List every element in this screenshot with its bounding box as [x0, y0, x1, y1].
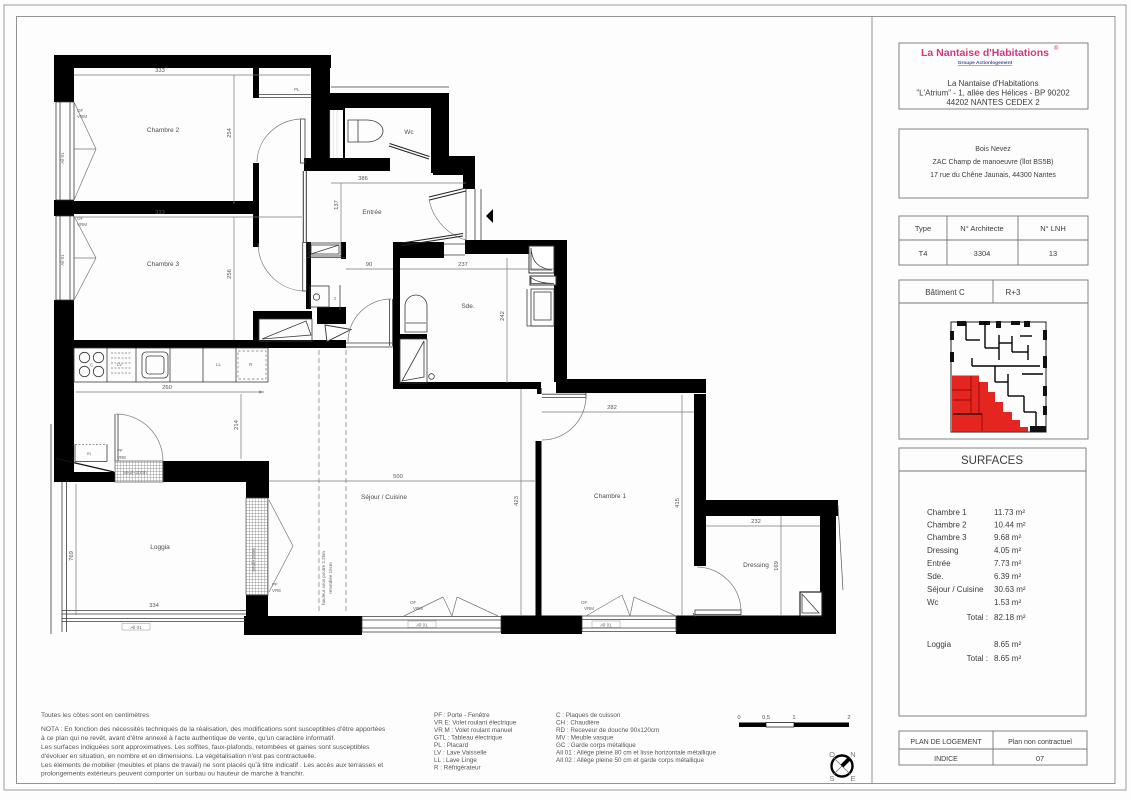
svg-text:La Nantaise d'Habitations: La Nantaise d'Habitations: [921, 47, 1049, 59]
svg-text:OF: OF: [410, 600, 417, 605]
svg-text:254: 254: [227, 127, 233, 137]
svg-text:All 01: All 01: [60, 152, 65, 164]
svg-text:Type: Type: [915, 224, 931, 233]
svg-text:90: 90: [366, 262, 372, 268]
svg-text:LV: LV: [117, 362, 122, 367]
svg-text:hauteur sous poutre 2.25m: hauteur sous poutre 2.25m: [321, 551, 326, 605]
svg-text:VRM: VRM: [584, 606, 594, 611]
svg-text:Les éléments de mobilier (meub: Les éléments de mobilier (meubles et pla…: [41, 762, 383, 769]
svg-text:PF: PF: [272, 582, 278, 587]
svg-text:VR E: Volet roulant électrique: VR E: Volet roulant électrique: [434, 720, 517, 727]
svg-text:S: S: [829, 774, 834, 783]
svg-text:La Nantaise d'Habitations: La Nantaise d'Habitations: [948, 79, 1039, 88]
svg-text:260: 260: [162, 385, 172, 391]
svg-text:500: 500: [393, 474, 403, 480]
svg-text:"L'Atrium" - 1, allée des Héli: "L'Atrium" - 1, allée des Hélices - BP 9…: [916, 89, 1070, 98]
svg-text:N° Architecte: N° Architecte: [960, 224, 1003, 233]
svg-text:Sde.: Sde.: [461, 303, 475, 310]
svg-text:Entrée: Entrée: [362, 209, 382, 216]
svg-text:PLAN DE LOGEMENT: PLAN DE LOGEMENT: [910, 739, 982, 746]
svg-text:30.63 m²: 30.63 m²: [994, 585, 1026, 594]
svg-text:Loggia: Loggia: [927, 640, 952, 649]
svg-text:VRM: VRM: [77, 222, 87, 227]
svg-text:Plan non contractuel: Plan non contractuel: [1008, 739, 1072, 746]
svg-text:PL: PL: [294, 87, 300, 92]
svg-text:7.73 m²: 7.73 m²: [994, 559, 1021, 568]
svg-text:386: 386: [358, 176, 368, 182]
svg-text:retombée 15cm: retombée 15cm: [328, 562, 333, 594]
svg-text:GC : Garde corps métallique: GC : Garde corps métallique: [556, 742, 636, 749]
svg-text:169: 169: [774, 561, 780, 571]
svg-text:1: 1: [792, 715, 795, 721]
svg-text:VRM: VRM: [413, 606, 423, 611]
svg-text:SURFACES: SURFACES: [961, 455, 1023, 467]
svg-text:All 01: All 01: [416, 623, 428, 628]
svg-text:PF: PF: [117, 448, 123, 453]
svg-text:®: ®: [1054, 44, 1059, 52]
svg-text:All 01: All 01: [600, 623, 612, 628]
svg-text:Seuil+20cm: Seuil+20cm: [123, 470, 147, 475]
svg-text:Entrée: Entrée: [927, 559, 951, 568]
svg-text:Dressing: Dressing: [743, 562, 769, 569]
svg-text:4.05 m²: 4.05 m²: [994, 546, 1021, 555]
svg-text:17 rue du Chêne Jaunais, 44300: 17 rue du Chêne Jaunais, 44300 Nantes: [930, 172, 1056, 179]
svg-text:423: 423: [514, 496, 520, 506]
svg-text:Bois Nevez: Bois Nevez: [975, 146, 1011, 153]
svg-text:Wc: Wc: [927, 598, 939, 607]
svg-text:Groupe Actionlogement: Groupe Actionlogement: [958, 60, 1013, 66]
svg-text:All 01 : Allège pleine 80 cm e: All 01 : Allège pleine 80 cm et lisse ho…: [556, 750, 716, 757]
svg-text:242: 242: [500, 311, 506, 321]
svg-text:Total :: Total :: [967, 654, 988, 663]
svg-text:PF : Porte - Fenêtre: PF : Porte - Fenêtre: [434, 712, 490, 719]
svg-text:R : Réfrigérateur: R : Réfrigérateur: [434, 765, 481, 772]
svg-text:Chambre 3: Chambre 3: [147, 261, 180, 268]
svg-text:Dressing: Dressing: [927, 546, 959, 555]
svg-text:à ce plan qui ne revêt, avant: à ce plan qui ne revêt, avant d'être ann…: [41, 735, 335, 742]
svg-text:0,5: 0,5: [762, 715, 770, 721]
svg-text:VRM: VRM: [77, 114, 87, 119]
svg-text:Chambre 2: Chambre 2: [927, 521, 967, 530]
svg-text:T4: T4: [919, 249, 928, 258]
svg-text:VRE: VRE: [272, 588, 281, 593]
svg-text:3304: 3304: [974, 249, 991, 258]
svg-text:GTL : Tableau électrique: GTL : Tableau électrique: [434, 735, 503, 742]
svg-text:E: E: [850, 774, 855, 783]
svg-text:44202 NANTES CEDEX 2: 44202 NANTES CEDEX 2: [946, 98, 1040, 107]
svg-text:NOTA : En fonction des nécessi: NOTA : En fonction des nécessités techni…: [41, 726, 386, 733]
svg-text:All 01: All 01: [60, 254, 65, 266]
svg-text:d'évoluer en situation, en nom: d'évoluer en situation, en nombre et en …: [41, 753, 316, 760]
svg-text:6.39 m²: 6.39 m²: [994, 572, 1021, 581]
svg-text:137: 137: [334, 200, 340, 210]
svg-text:C : Plaques de cuisson: C : Plaques de cuisson: [556, 712, 621, 719]
svg-text:OF: OF: [77, 216, 84, 221]
svg-text:N: N: [850, 750, 855, 759]
svg-text:CH : Chaudière: CH : Chaudière: [556, 720, 600, 727]
svg-text:11.73 m²: 11.73 m²: [994, 508, 1025, 517]
svg-text:Séjour / Cuisine: Séjour / Cuisine: [361, 494, 407, 501]
svg-text:Total :: Total :: [967, 613, 988, 622]
svg-text:LL: LL: [216, 362, 222, 367]
svg-text:MV : Meuble vasque: MV : Meuble vasque: [556, 735, 614, 742]
svg-text:R+3: R+3: [1006, 288, 1021, 297]
svg-text:415: 415: [675, 498, 681, 508]
svg-text:333: 333: [155, 210, 165, 216]
svg-text:9.68 m²: 9.68 m²: [994, 533, 1021, 542]
svg-text:214: 214: [234, 419, 240, 429]
svg-text:OF: OF: [581, 600, 588, 605]
svg-text:ZAC Champ de manoeuvre (îlot B: ZAC Champ de manoeuvre (îlot BS5B): [933, 159, 1054, 166]
svg-text:07: 07: [1036, 754, 1044, 763]
svg-text:Chambre 1: Chambre 1: [927, 508, 967, 517]
svg-text:237: 237: [458, 262, 468, 268]
svg-text:Chambre 1: Chambre 1: [594, 493, 627, 500]
svg-text:Chambre 2: Chambre 2: [147, 127, 180, 134]
svg-text:All 01: All 01: [130, 625, 142, 630]
svg-text:Wc: Wc: [404, 129, 414, 136]
svg-text:8.65 m²: 8.65 m²: [994, 654, 1021, 663]
svg-text:All 02 : Allège pleine 50 cm e: All 02 : Allège pleine 50 cm et garde co…: [556, 757, 705, 764]
svg-text:13: 13: [1049, 249, 1057, 258]
svg-text:INDICE: INDICE: [934, 756, 958, 763]
svg-text:VR M : Volet roulant manuel: VR M : Volet roulant manuel: [434, 727, 512, 734]
svg-text:82.18 m²: 82.18 m²: [994, 613, 1026, 622]
svg-text:O: O: [829, 750, 835, 759]
svg-text:LL : Lave Linge: LL : Lave Linge: [434, 757, 477, 764]
svg-text:prolongements extérieurs peuve: prolongements extérieurs peuvent comport…: [41, 771, 304, 778]
svg-text:256: 256: [227, 269, 233, 279]
svg-text:10.44 m²: 10.44 m²: [994, 521, 1026, 530]
svg-text:LV : Lave Vaisselle: LV : Lave Vaisselle: [434, 750, 487, 757]
svg-text:2: 2: [847, 715, 850, 721]
svg-text:VRE: VRE: [117, 455, 126, 460]
svg-text:Chambre 3: Chambre 3: [927, 533, 967, 542]
svg-text:Toutes les côtes sont en centi: Toutes les côtes sont en centimètres: [41, 712, 150, 719]
svg-text:m: m: [87, 451, 91, 456]
svg-text:232: 232: [751, 519, 761, 525]
svg-text:Bâtiment C: Bâtiment C: [925, 288, 965, 297]
svg-text:RD : Receveur de douche 90x120: RD : Receveur de douche 90x120cm: [556, 727, 659, 734]
svg-text:PL : Placard: PL : Placard: [434, 742, 469, 749]
svg-text:1.53 m²: 1.53 m²: [994, 598, 1021, 607]
svg-text:N° LNH: N° LNH: [1040, 224, 1066, 233]
svg-text:Séjour / Cuisine: Séjour / Cuisine: [927, 585, 984, 594]
svg-text:282: 282: [607, 405, 617, 411]
svg-text:769: 769: [69, 551, 75, 561]
svg-text:8.65 m²: 8.65 m²: [994, 640, 1021, 649]
svg-text:Sde.: Sde.: [927, 572, 943, 581]
svg-text:Les surfaces indiquées sont ap: Les surfaces indiquées sont approximativ…: [41, 744, 370, 751]
svg-text:Seuil+20cm: Seuil+20cm: [251, 548, 256, 572]
svg-text:0: 0: [737, 715, 740, 721]
svg-text:334: 334: [149, 603, 159, 609]
svg-text:333: 333: [155, 68, 165, 74]
svg-text:OF: OF: [77, 108, 84, 113]
svg-text:Loggia: Loggia: [150, 544, 170, 551]
